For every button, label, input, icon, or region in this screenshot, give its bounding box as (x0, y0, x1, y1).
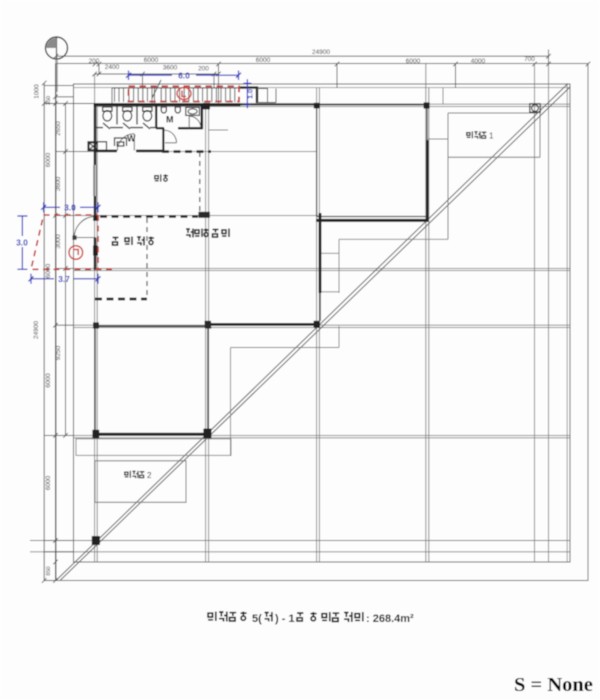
svg-text:6000: 6000 (406, 58, 421, 65)
svg-text:5(: 5( (252, 613, 262, 625)
svg-text:2400: 2400 (105, 64, 120, 71)
svg-text:M: M (166, 115, 174, 125)
svg-text:6000: 6000 (45, 475, 52, 490)
svg-text:1: 1 (489, 132, 494, 141)
svg-text:9250: 9250 (55, 345, 62, 360)
svg-text:3000: 3000 (55, 234, 62, 249)
svg-text:6000: 6000 (256, 57, 271, 64)
svg-text:3.0: 3.0 (64, 202, 76, 212)
svg-text:3600: 3600 (55, 176, 62, 191)
svg-text:2650: 2650 (55, 121, 62, 136)
svg-text:700: 700 (524, 56, 535, 63)
svg-text:: 268.4m²: : 268.4m² (366, 613, 414, 625)
svg-text:6000: 6000 (45, 263, 52, 278)
svg-text:3.0: 3.0 (16, 238, 28, 248)
svg-text:24900: 24900 (33, 321, 40, 339)
svg-text:3.7: 3.7 (58, 274, 70, 284)
svg-text:24900: 24900 (312, 49, 330, 56)
svg-text:) - 1: ) - 1 (275, 613, 295, 625)
svg-text:6000: 6000 (144, 57, 159, 64)
svg-text:3600: 3600 (163, 65, 178, 72)
svg-text:200: 200 (198, 65, 209, 72)
svg-text:S = None: S = None (514, 674, 593, 696)
svg-text:6.0: 6.0 (178, 71, 190, 81)
svg-text:4000: 4000 (471, 58, 486, 65)
svg-text:2: 2 (147, 471, 152, 480)
svg-text:6000: 6000 (45, 152, 52, 167)
svg-text:1.0: 1.0 (248, 89, 255, 99)
svg-text:200: 200 (89, 58, 100, 65)
svg-text:6000: 6000 (45, 373, 52, 388)
svg-text:1000: 1000 (34, 84, 41, 99)
svg-text:850: 850 (46, 566, 52, 575)
